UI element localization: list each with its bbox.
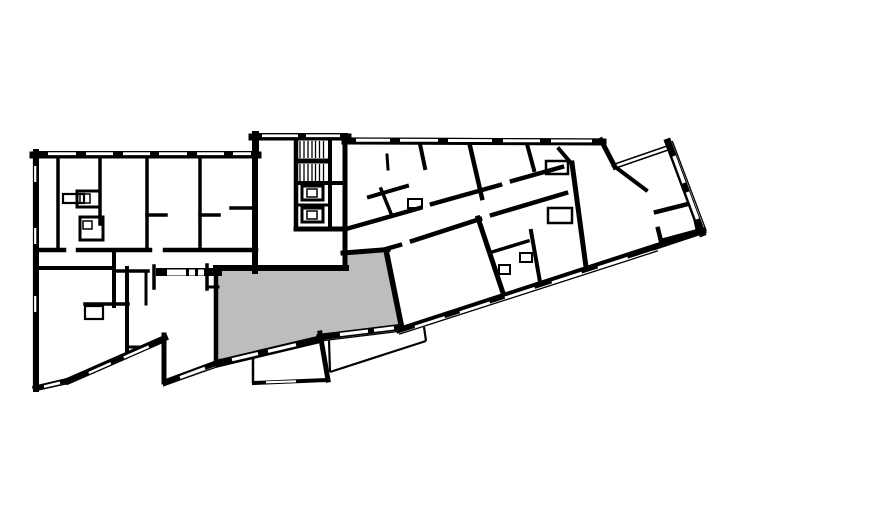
elevator-2 — [302, 208, 323, 222]
corridor-wall-up-b — [432, 185, 500, 204]
balcony-2-bottom — [330, 341, 426, 372]
window-sill — [163, 367, 218, 387]
window — [266, 381, 296, 382]
wall-notch-int — [614, 166, 646, 190]
window-sill — [672, 141, 706, 231]
corridor-wall-low-b — [412, 219, 480, 241]
bath-wall-a1 — [369, 186, 407, 197]
window-sill — [67, 342, 165, 385]
wall-unit-top-diag — [343, 250, 388, 254]
elevator-1 — [302, 186, 323, 200]
terrace-railing-2 — [613, 149, 671, 169]
divider-4 — [572, 163, 586, 267]
wall-stub-5 — [387, 155, 388, 169]
wall-bottom-left-diag — [67, 338, 165, 381]
corridor-wall-low-a — [386, 245, 400, 249]
fixture-2 — [83, 221, 92, 229]
elevator-cab-1 — [307, 189, 317, 197]
balcony-2-left — [329, 340, 330, 372]
wall-bottom-right-diag — [399, 246, 657, 330]
elevator-cab-2 — [307, 211, 317, 219]
floor-plan — [0, 0, 888, 532]
wall-notch-left — [601, 140, 615, 167]
divider-1 — [420, 144, 425, 168]
bath-wall-b — [492, 241, 528, 252]
corridor-wall-up-a — [346, 208, 420, 229]
closet-box-1 — [167, 270, 186, 276]
closet-box-2 — [189, 270, 195, 276]
end-room-top — [656, 203, 692, 212]
fixture-shelf — [63, 194, 84, 203]
closet-box-3 — [198, 270, 204, 276]
end-room-left — [658, 229, 661, 241]
fixture-6 — [520, 253, 532, 262]
balcony-2-right — [424, 327, 426, 341]
divider-5 — [478, 218, 503, 293]
terrace-railing-1 — [612, 145, 670, 165]
floor-plan-page — [0, 0, 888, 532]
fixture-8 — [548, 208, 572, 223]
corridor-wall-low-c — [492, 193, 566, 215]
window-sill — [399, 251, 658, 334]
fixture-5 — [499, 265, 510, 274]
divider-3 — [527, 144, 534, 170]
fixture-3 — [85, 306, 103, 319]
